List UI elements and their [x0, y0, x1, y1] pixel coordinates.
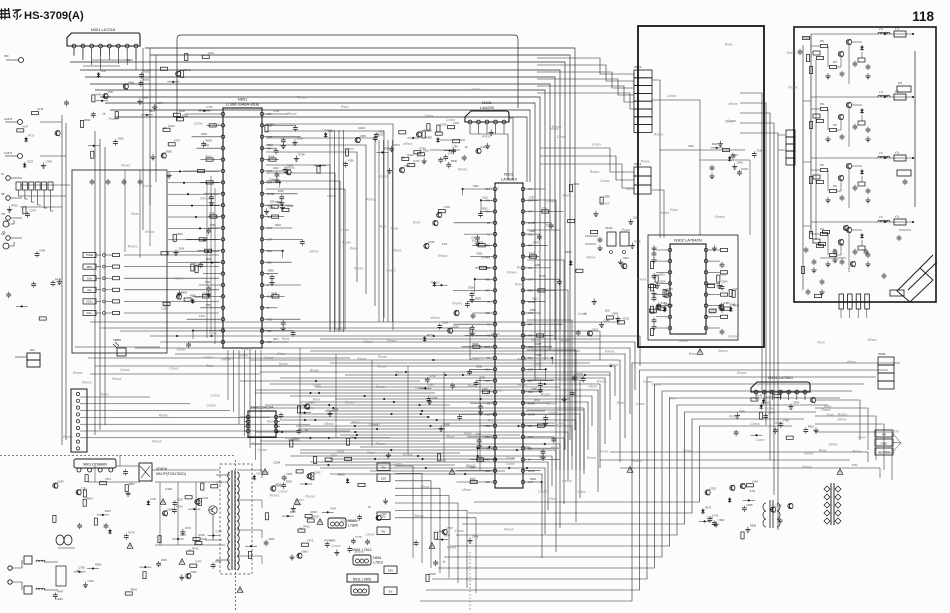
- svg-text:Rxxxx.: Rxxxx.: [354, 267, 364, 271]
- svg-text:Cxxxx: Cxxxx: [446, 118, 456, 122]
- svg-text:VCO: VCO: [267, 136, 272, 139]
- svg-text:Rxxxx: Rxxxx: [310, 369, 320, 373]
- svg-text:C986: C986: [163, 303, 170, 307]
- svg-text:V686: V686: [190, 294, 197, 298]
- svg-text:Cxxxx: Cxxxx: [471, 87, 481, 91]
- svg-text:R626: R626: [529, 253, 535, 256]
- svg-text:R379: R379: [732, 153, 739, 157]
- svg-text:C515: C515: [452, 325, 459, 329]
- svg-text:100: 100: [605, 308, 610, 312]
- svg-text:Rxxx: Rxxx: [336, 328, 344, 332]
- svg-text:C204: C204: [165, 487, 172, 491]
- svg-text:C934: C934: [793, 401, 800, 405]
- svg-text:V779: V779: [355, 535, 362, 539]
- svg-text:C808: C808: [442, 321, 449, 325]
- svg-text:Cxxxx: Cxxxx: [546, 199, 556, 203]
- svg-text:Rxxxx.: Rxxxx.: [637, 278, 647, 282]
- svg-text:C285: C285: [427, 382, 434, 386]
- svg-text:Rxxx: Rxxx: [817, 341, 825, 345]
- svg-text:Rxxxx.: Rxxxx.: [683, 449, 693, 453]
- svg-text:Rxxx: Rxxx: [391, 226, 399, 230]
- svg-text:HS-3709(A): HS-3709(A): [24, 10, 84, 22]
- svg-text:V926: V926: [348, 158, 355, 162]
- svg-text:xRxxx: xRxxx: [585, 255, 596, 259]
- svg-text:V567: V567: [108, 90, 115, 94]
- svg-text:R530: R530: [215, 560, 222, 564]
- svg-text:C309: C309: [350, 436, 357, 440]
- svg-text:IN: IN: [528, 459, 531, 462]
- svg-text:OUT: OUT: [528, 312, 534, 315]
- svg-text:N101: N101: [482, 100, 492, 105]
- svg-text:R417: R417: [273, 338, 279, 341]
- svg-text:SDA: SDA: [267, 182, 272, 185]
- svg-text:Rxxxx.: Rxxxx.: [267, 420, 277, 424]
- svg-text:V779: V779: [448, 152, 455, 156]
- svg-text:Cxxxx: Cxxxx: [169, 367, 179, 371]
- svg-text:Rxxx: Rxxx: [464, 432, 472, 436]
- svg-text:C986: C986: [529, 230, 535, 233]
- svg-text:N302 LA7642N: N302 LA7642N: [674, 238, 701, 243]
- svg-text:Rxxx: Rxxx: [262, 470, 270, 474]
- svg-text:Rxxx: Rxxx: [563, 194, 571, 198]
- svg-text:Rxxxx.: Rxxxx.: [605, 350, 615, 354]
- svg-text:R236: R236: [419, 146, 426, 150]
- svg-text:Rxxxx.: Rxxxx.: [517, 265, 527, 269]
- svg-text:C499: C499: [472, 535, 479, 539]
- svg-text:Cxxxx: Cxxxx: [667, 94, 677, 98]
- svg-text:C285: C285: [707, 515, 714, 519]
- svg-text:Rxxx: Rxxx: [447, 435, 455, 439]
- svg-text:R132: R132: [288, 204, 295, 208]
- svg-text:Rxxxx: Rxxxx: [357, 357, 367, 361]
- svg-text:R554: R554: [95, 563, 102, 567]
- svg-text:Cxxxx: Cxxxx: [493, 389, 503, 393]
- svg-text:R559: R559: [475, 298, 481, 301]
- svg-text:SCL: SCL: [528, 267, 533, 270]
- svg-text:Cxxxx: Cxxxx: [415, 386, 425, 390]
- svg-text:V580: V580: [190, 570, 197, 574]
- svg-text:C764: C764: [330, 506, 337, 510]
- svg-text:R200: R200: [143, 78, 150, 82]
- svg-text:VIN: VIN: [4, 54, 8, 58]
- svg-text:R939: R939: [195, 295, 202, 299]
- svg-text:V323: V323: [381, 512, 388, 516]
- svg-text:Rxxxx.: Rxxxx.: [488, 419, 498, 423]
- svg-text:C934: C934: [46, 160, 53, 164]
- svg-text:XP21: XP21: [634, 65, 642, 69]
- svg-text:P1.0: P1.0: [485, 369, 491, 372]
- svg-text:Cxxxx: Cxxxx: [344, 147, 354, 151]
- svg-text:Cxxxx: Cxxxx: [538, 489, 548, 493]
- svg-text:C625: C625: [710, 486, 717, 490]
- svg-text:V469: V469: [612, 312, 619, 316]
- svg-text:R132: R132: [623, 316, 630, 320]
- svg-text:Rxxxx.: Rxxxx.: [376, 442, 386, 446]
- svg-text:Cxxxx: Cxxxx: [203, 356, 213, 360]
- svg-text:Rxxxx.: Rxxxx.: [654, 132, 664, 136]
- svg-text:Rxxxx: Rxxxx: [371, 423, 381, 427]
- svg-text:R647: R647: [57, 590, 64, 594]
- svg-text:C473: C473: [195, 560, 202, 564]
- svg-text:C654: C654: [721, 280, 728, 284]
- svg-text:5V: 5V: [389, 590, 393, 594]
- svg-text:V803: V803: [659, 273, 666, 277]
- svg-text:R418: R418: [275, 224, 281, 227]
- svg-text:V237: V237: [101, 69, 108, 73]
- svg-text:xRxxx: xRxxx: [461, 488, 472, 492]
- svg-text:K7x: K7x: [895, 152, 900, 155]
- svg-text:OUT: OUT: [528, 278, 534, 281]
- svg-text:V194: V194: [752, 479, 759, 483]
- svg-text:Rxxxx.: Rxxxx.: [403, 453, 413, 457]
- svg-text:IN: IN: [267, 307, 270, 310]
- svg-text:V674: V674: [157, 101, 164, 105]
- svg-text:VD801: VD801: [113, 338, 121, 342]
- svg-text:Rxxxx.: Rxxxx.: [366, 197, 376, 201]
- svg-text:Cxxxx: Cxxxx: [210, 393, 220, 397]
- svg-text:OUT: OUT: [267, 227, 273, 230]
- svg-text:V704: V704: [838, 244, 844, 247]
- svg-text:CH-: CH-: [87, 288, 92, 292]
- svg-text:C946: C946: [604, 319, 611, 323]
- svg-text:VOL-: VOL-: [86, 311, 92, 315]
- svg-text:R300: R300: [470, 478, 476, 481]
- svg-text:Rxxxx.: Rxxxx.: [297, 96, 307, 100]
- svg-text:R414: R414: [87, 497, 94, 501]
- svg-text:xRxxx: xRxxx: [573, 374, 584, 378]
- svg-text:AFT: AFT: [528, 323, 533, 326]
- svg-text:Rxxxx.: Rxxxx.: [689, 352, 699, 356]
- svg-text:V253: V253: [633, 216, 640, 220]
- svg-text:Cxxxx: Cxxxx: [386, 269, 396, 273]
- svg-text:R249: R249: [742, 167, 749, 171]
- svg-text:100: 100: [270, 200, 275, 204]
- svg-text:C473: C473: [307, 539, 314, 543]
- svg-text:SCL: SCL: [267, 261, 272, 264]
- svg-text:V126: V126: [733, 287, 740, 291]
- svg-text:Cxxxx: Cxxxx: [635, 402, 645, 406]
- svg-text:xRxxx: xRxxx: [238, 354, 249, 358]
- svg-text:Rxxxx: Rxxxx: [621, 228, 631, 232]
- svg-text:V323: V323: [481, 145, 488, 149]
- svg-text:PRG: PRG: [87, 265, 93, 269]
- svg-text:xRxxx: xRxxx: [285, 166, 296, 170]
- svg-text:Cxxxx: Cxxxx: [765, 407, 775, 411]
- svg-text:8V: 8V: [382, 530, 386, 534]
- svg-text:Rxxx: Rxxx: [350, 247, 358, 251]
- svg-text:V686: V686: [664, 303, 671, 307]
- svg-text:Rxxx: Rxxx: [395, 371, 403, 375]
- svg-text:SCL: SCL: [528, 233, 533, 236]
- svg-text:C431: C431: [331, 454, 338, 458]
- svg-text:Rxxxx: Rxxxx: [345, 400, 355, 404]
- svg-text:C986: C986: [653, 307, 660, 311]
- svg-text:V571: V571: [105, 477, 112, 481]
- svg-text:Cxxxx: Cxxxx: [258, 448, 268, 452]
- svg-text:Rxxx: Rxxx: [206, 364, 214, 368]
- svg-text:KEY: KEY: [528, 425, 533, 428]
- svg-text:AFT: AFT: [528, 211, 533, 214]
- svg-text:ON: ON: [30, 348, 35, 352]
- svg-text:C783: C783: [78, 566, 85, 570]
- svg-text:Rxxxx: Rxxxx: [342, 241, 352, 245]
- svg-text:Rxxxx: Rxxxx: [287, 112, 297, 116]
- svg-text:Cxxxx: Cxxxx: [331, 544, 341, 548]
- svg-text:R768: R768: [298, 153, 305, 157]
- svg-text:V674: V674: [185, 526, 192, 530]
- svg-text:V237: V237: [150, 497, 157, 501]
- svg-text:R930: R930: [84, 118, 91, 122]
- svg-text:xRxxx: xRxxx: [308, 250, 319, 254]
- svg-text:Rxxxx: Rxxxx: [376, 385, 386, 389]
- svg-text:Rxxxx.: Rxxxx.: [518, 383, 528, 387]
- svg-text:xRxxx: xRxxx: [543, 224, 554, 228]
- svg-text:xRxxx: xRxxx: [391, 248, 402, 252]
- svg-text:Rxxxx.: Rxxxx.: [458, 168, 468, 172]
- svg-text:Cxxxx: Cxxxx: [295, 498, 305, 502]
- svg-text:VR: VR: [1, 193, 5, 196]
- svg-text:V518: V518: [182, 113, 189, 117]
- svg-text:Rxxx: Rxxx: [472, 239, 480, 243]
- svg-text:R717: R717: [766, 395, 773, 399]
- svg-text:Rxxxx.: Rxxxx.: [504, 528, 514, 532]
- svg-text:C744: C744: [273, 110, 279, 113]
- svg-text:OUT: OUT: [528, 369, 534, 372]
- svg-text:xRxxx: xRxxx: [402, 142, 413, 146]
- svg-text:V949: V949: [95, 92, 102, 96]
- svg-text:R848: R848: [271, 292, 277, 295]
- svg-text:C315: C315: [482, 196, 488, 199]
- svg-text:Rxxxx.: Rxxxx.: [718, 349, 728, 353]
- svg-text:Rxxxx: Rxxxx: [327, 409, 337, 413]
- svg-text:VOL+: VOL+: [86, 300, 93, 304]
- svg-text:AD0: AD0: [485, 481, 490, 484]
- svg-text:TH601: TH601: [55, 597, 63, 601]
- svg-text:R525: R525: [472, 343, 478, 346]
- svg-text:Rxxx: Rxxx: [669, 397, 677, 401]
- svg-text:LA76810: LA76810: [501, 177, 518, 182]
- svg-text:V686: V686: [729, 303, 736, 307]
- svg-text:C943: C943: [623, 256, 630, 260]
- svg-text:Cxxxx: Cxxxx: [278, 490, 288, 494]
- svg-text:Rxxx: Rxxx: [858, 435, 866, 439]
- svg-text:XS43: XS43: [878, 352, 886, 356]
- svg-text:C629: C629: [27, 159, 34, 163]
- svg-text:V518: V518: [313, 515, 320, 519]
- svg-text:Cxxxx: Cxxxx: [322, 128, 332, 132]
- svg-text:Cxxxx: Cxxxx: [506, 456, 516, 460]
- svg-text:Cxxxx: Cxxxx: [143, 184, 153, 188]
- svg-text:R530: R530: [451, 159, 458, 163]
- svg-text:Rxxx: Rxxx: [826, 413, 834, 417]
- svg-text:xRxxx: xRxxx: [220, 357, 231, 361]
- svg-text:Cxxxx: Cxxxx: [393, 462, 403, 466]
- svg-text:KEY: KEY: [267, 147, 272, 150]
- svg-text:Cxxxx: Cxxxx: [506, 462, 516, 466]
- svg-text:MUTE: MUTE: [528, 301, 535, 304]
- svg-text:Rxxxx.: Rxxxx.: [838, 413, 848, 417]
- svg-text:C974: C974: [30, 209, 37, 213]
- svg-text:xRxxx: xRxxx: [326, 194, 337, 198]
- svg-text:P1.0: P1.0: [485, 211, 491, 214]
- svg-text:V994: V994: [718, 518, 725, 522]
- svg-text:V580: V580: [302, 550, 309, 554]
- svg-text:R318: R318: [712, 143, 718, 146]
- svg-text:L7805: L7805: [348, 524, 358, 528]
- svg-text:xRxxx: xRxxx: [419, 485, 430, 489]
- svg-text:R533: R533: [482, 208, 488, 211]
- svg-text:R927: R927: [180, 533, 187, 537]
- svg-text:V518: V518: [200, 537, 207, 541]
- svg-text:xRxxx: xRxxx: [490, 332, 501, 336]
- svg-text:C403: C403: [482, 388, 488, 391]
- svg-text:Rxxxx.: Rxxxx.: [737, 371, 747, 375]
- svg-text:AD0: AD0: [485, 425, 490, 428]
- svg-text:C743: C743: [712, 514, 719, 518]
- svg-text:xRxxx: xRxxx: [276, 352, 287, 356]
- svg-text:C743: C743: [429, 374, 436, 378]
- svg-text:C890: C890: [269, 122, 276, 126]
- svg-text:R388: R388: [443, 423, 450, 427]
- svg-text:V580: V580: [166, 150, 173, 154]
- svg-text:Rxxxx: Rxxxx: [175, 277, 185, 281]
- svg-text:Rxxx: Rxxx: [379, 224, 387, 228]
- svg-text:0.01: 0.01: [750, 489, 756, 493]
- svg-text:R530: R530: [206, 138, 213, 142]
- svg-text:Rxxxx: Rxxxx: [349, 519, 359, 523]
- svg-text:C142: C142: [314, 470, 321, 474]
- svg-text:C431: C431: [208, 51, 215, 55]
- svg-text:N301 LA7016: N301 LA7016: [91, 27, 116, 32]
- svg-text:RST: RST: [485, 436, 490, 439]
- svg-text:Rxxxx.: Rxxxx.: [200, 197, 210, 201]
- svg-text:RST: RST: [485, 290, 490, 293]
- svg-text:V803: V803: [177, 232, 184, 236]
- svg-text:C890: C890: [604, 195, 611, 199]
- svg-text:Rxxx: Rxxx: [337, 449, 345, 453]
- svg-text:XS102: XS102: [605, 227, 613, 230]
- svg-text:Rxxxx.: Rxxxx.: [159, 414, 169, 418]
- svg-text:VSS: VSS: [485, 200, 490, 203]
- svg-text:V305: V305: [167, 507, 174, 511]
- svg-text:Rxxxx.: Rxxxx.: [679, 339, 689, 343]
- svg-text:C764: C764: [206, 105, 213, 109]
- svg-text:Rxxx: Rxxx: [423, 128, 431, 132]
- svg-text:Cxxxx: Cxxxx: [288, 437, 298, 441]
- svg-text:Rxxxx.: Rxxxx.: [82, 380, 92, 384]
- svg-text:R327: R327: [533, 241, 539, 244]
- svg-text:MUTE: MUTE: [528, 222, 535, 225]
- svg-text:Rxxxx: Rxxxx: [617, 401, 627, 405]
- svg-text:Rxxxx: Rxxxx: [609, 363, 619, 367]
- svg-text:V784: V784: [39, 248, 46, 252]
- svg-text:V305: V305: [128, 81, 135, 85]
- svg-text:Cxxxx: Cxxxx: [207, 403, 217, 407]
- svg-text:C906: C906: [468, 286, 474, 289]
- svg-text:A-OUT: A-OUT: [4, 117, 12, 121]
- svg-text:C133: C133: [779, 390, 786, 394]
- svg-text:Rxxx: Rxxx: [131, 212, 139, 216]
- svg-text:VCO: VCO: [528, 436, 533, 439]
- svg-text:P1.0: P1.0: [485, 346, 491, 349]
- svg-text:R483: R483: [181, 291, 188, 295]
- svg-text:0.01: 0.01: [442, 242, 448, 246]
- svg-text:Rxxx: Rxxx: [313, 397, 321, 401]
- svg-text:Rxxxx: Rxxxx: [121, 164, 131, 168]
- svg-text:Rxxx: Rxxx: [670, 208, 678, 212]
- svg-text:Rxxxx: Rxxxx: [728, 334, 738, 338]
- svg-text:Rxxx: Rxxx: [725, 43, 733, 47]
- svg-text:IN: IN: [267, 284, 270, 287]
- svg-text:IN: IN: [267, 273, 270, 276]
- svg-text:Rxxxx.: Rxxxx.: [562, 479, 572, 483]
- svg-text:R413: R413: [169, 124, 176, 128]
- svg-text:C179: C179: [199, 315, 205, 318]
- svg-text:Cxxxx: Cxxxx: [120, 368, 130, 372]
- svg-text:Rxxx: Rxxx: [490, 413, 498, 417]
- svg-text:C473: C473: [413, 159, 420, 163]
- svg-text:SDA: SDA: [528, 391, 533, 394]
- svg-text:Cxxxx: Cxxxx: [455, 529, 465, 533]
- svg-text:xRxxx: xRxxx: [323, 538, 334, 542]
- svg-text:V469: V469: [277, 201, 284, 205]
- svg-text:Rxxxx: Rxxxx: [264, 356, 274, 360]
- svg-text:Cxxxx: Cxxxx: [365, 532, 375, 536]
- svg-text:Rxxxx.: Rxxxx.: [633, 459, 643, 463]
- svg-text:Rxxxx.: Rxxxx.: [252, 442, 262, 446]
- svg-text:xRxxx: xRxxx: [625, 187, 636, 191]
- svg-text:Rxxx: Rxxx: [101, 393, 109, 397]
- svg-text:Cxxxx: Cxxxx: [750, 422, 760, 426]
- svg-text:V202: V202: [144, 70, 151, 74]
- svg-text:Rxxx: Rxxx: [341, 105, 349, 109]
- svg-text:V926: V926: [118, 137, 125, 141]
- svg-text:Rxxxx: Rxxxx: [177, 348, 187, 352]
- svg-text:C946: C946: [269, 205, 276, 209]
- svg-text:Rxxxx.: Rxxxx.: [414, 514, 424, 518]
- svg-text:R413: R413: [304, 525, 311, 529]
- svg-text:12V: 12V: [381, 477, 386, 481]
- svg-text:9V: 9V: [382, 466, 386, 470]
- svg-text:Rxxxx.: Rxxxx.: [481, 255, 491, 259]
- svg-text:Rxxxx: Rxxxx: [787, 51, 797, 55]
- svg-text:R236: R236: [311, 510, 318, 514]
- svg-text:xRxxx: xRxxx: [587, 384, 598, 388]
- svg-text:Cxxxx: Cxxxx: [578, 312, 588, 316]
- svg-text:xRxxx: xRxxx: [481, 135, 492, 139]
- svg-text:N551: N551: [373, 556, 382, 560]
- svg-text:Cxxxx: Cxxxx: [437, 458, 447, 462]
- svg-text:Cxxxx: Cxxxx: [194, 122, 204, 126]
- svg-text:LC86F3348A-8638: LC86F3348A-8638: [226, 102, 261, 107]
- svg-text:V580: V580: [404, 164, 411, 168]
- svg-text:Rxxx: Rxxx: [549, 497, 557, 501]
- svg-text:V253: V253: [297, 137, 304, 141]
- svg-text:C266: C266: [531, 388, 537, 391]
- svg-text:N431 LA7840: N431 LA7840: [768, 375, 793, 380]
- svg-text:N601 D2SBA60: N601 D2SBA60: [83, 463, 107, 467]
- svg-text:V126: V126: [667, 287, 674, 291]
- svg-text:TUNE: TUNE: [86, 253, 93, 257]
- svg-text:xRxxx: xRxxx: [430, 316, 441, 320]
- svg-text:V567: V567: [447, 526, 454, 530]
- svg-text:Rxxxx.: Rxxxx.: [145, 230, 155, 234]
- svg-text:SCL: SCL: [267, 330, 272, 333]
- svg-text:Rxxxx.: Rxxxx.: [590, 170, 600, 174]
- svg-text:C473: C473: [174, 138, 181, 142]
- svg-text:Cxxxx: Cxxxx: [556, 421, 566, 425]
- svg-text:Cxxxx: Cxxxx: [592, 143, 602, 147]
